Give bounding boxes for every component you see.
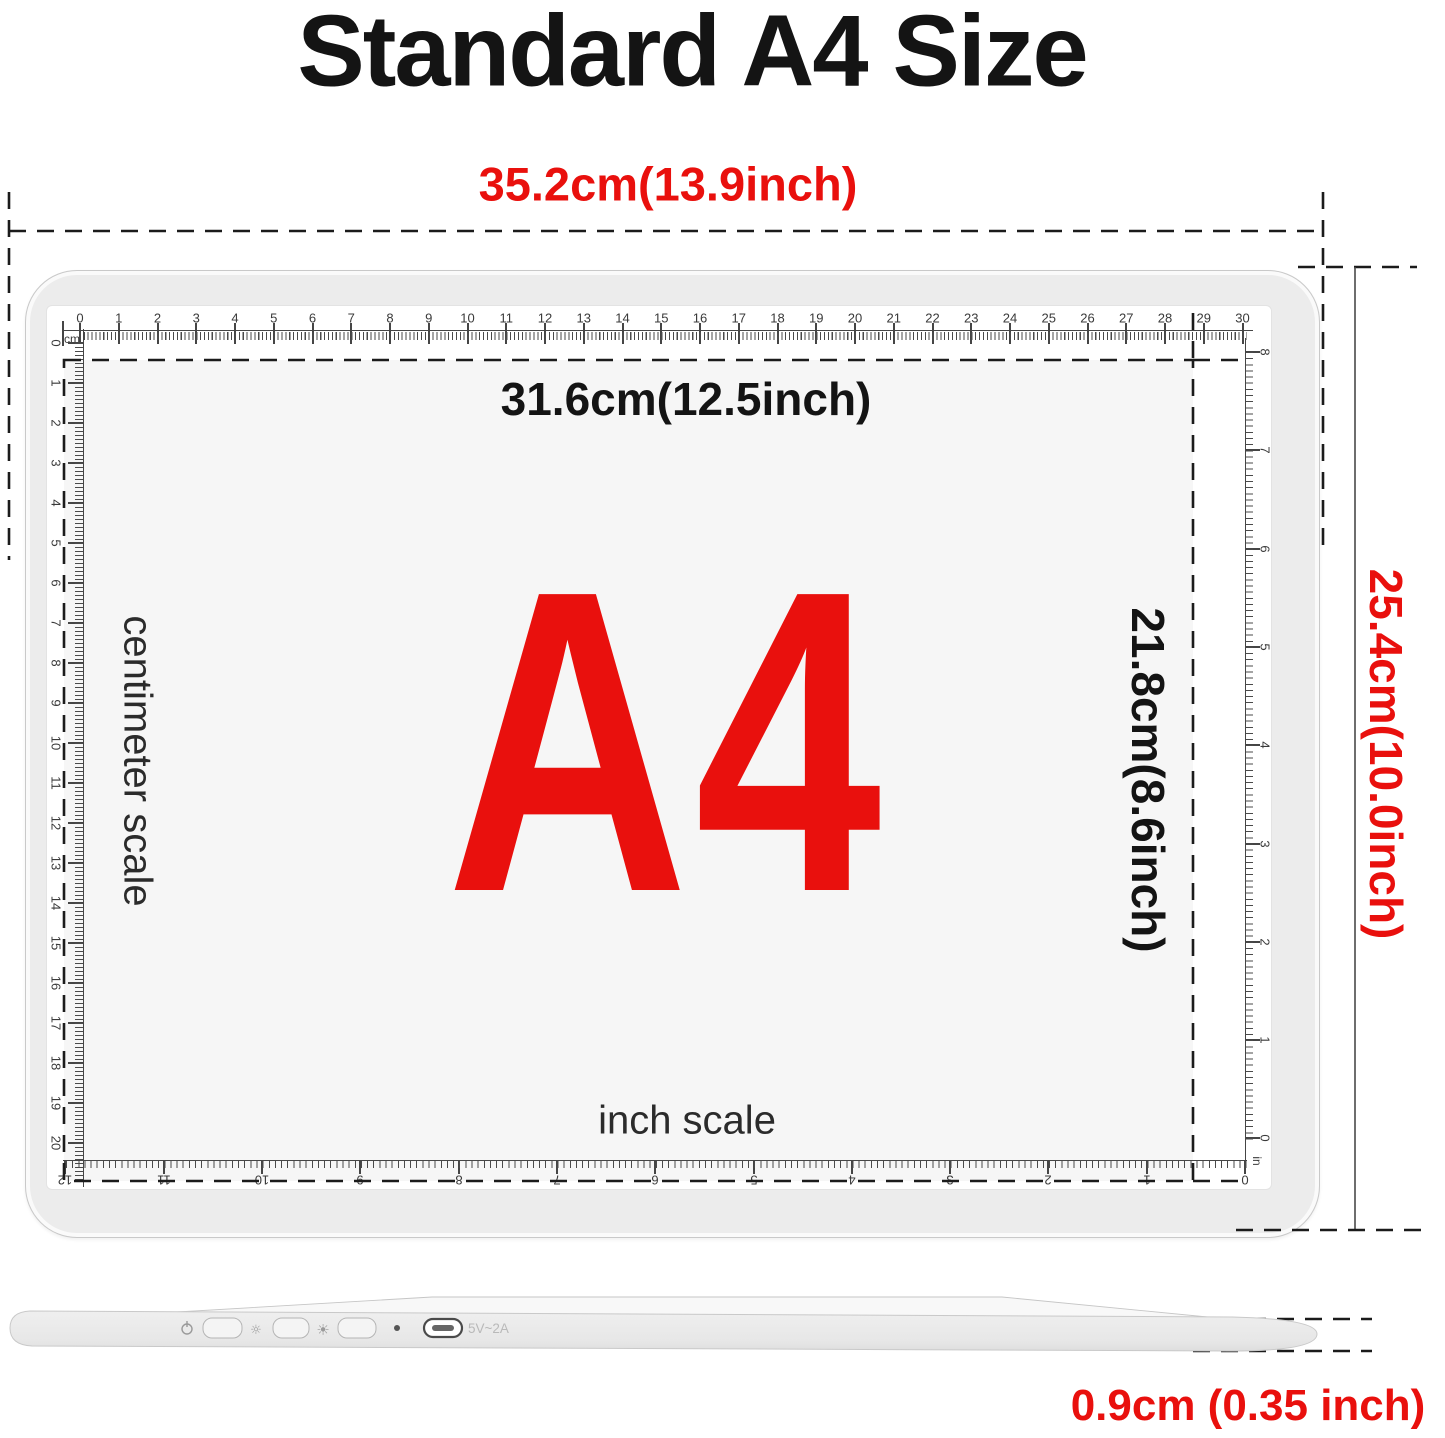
brightness-up-button (338, 1318, 376, 1338)
usb-c-port (424, 1319, 462, 1337)
brightness-down-button (273, 1318, 309, 1338)
page: { "page": { "title": "Standard A4 Size" … (0, 0, 1445, 1438)
brightness-low-icon: ☼ (250, 1323, 262, 1338)
brightness-high-icon: ☀ (316, 1321, 329, 1339)
indicator-led (394, 1325, 400, 1331)
a4-area-outline (64, 360, 1193, 1181)
port-voltage-label: 5V~2A (468, 1321, 509, 1336)
power-button (203, 1318, 242, 1338)
dimension-lines (0, 0, 1445, 1438)
side-view: ☼ ☀ 5V~2A (0, 1280, 1445, 1438)
